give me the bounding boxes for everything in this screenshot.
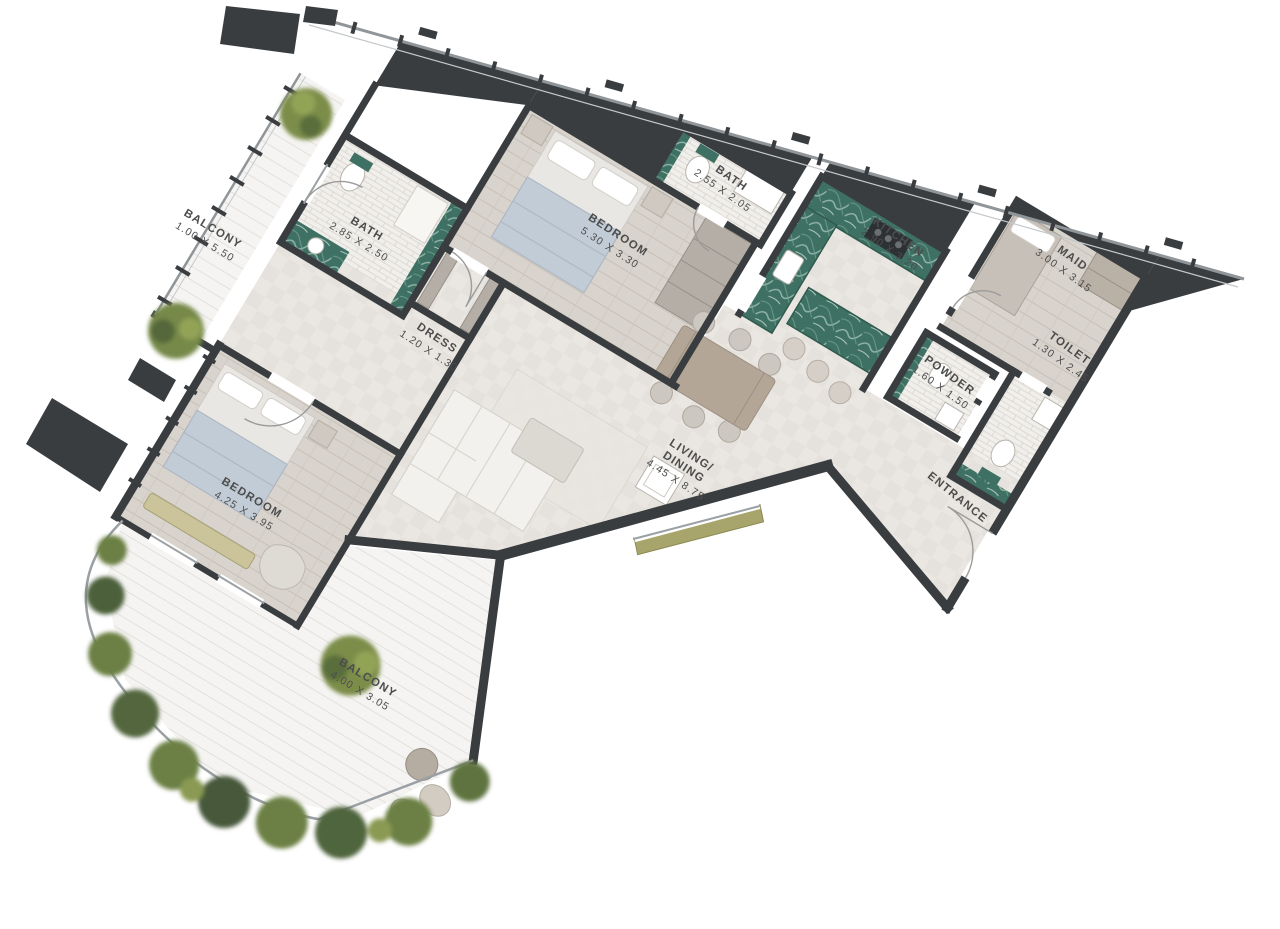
floor-plan-page: BALCONY 1.00 X 5.50 BATH 2.85 X 2.50 BED… <box>0 0 1280 929</box>
floor-plan-drawing: BALCONY 1.00 X 5.50 BATH 2.85 X 2.50 BED… <box>0 0 1280 929</box>
